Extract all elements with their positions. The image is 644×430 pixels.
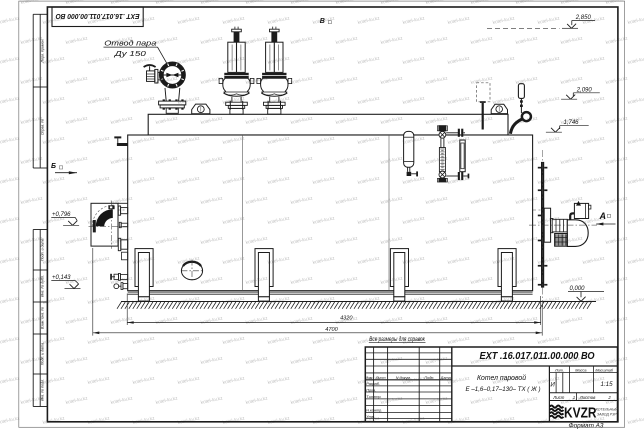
svg-text:Е –1,6–0,17–130– ТХ ( Ж ): Е –1,6–0,17–130– ТХ ( Ж ) [466,386,541,393]
svg-text:Лит.: Лит. [554,368,564,372]
svg-text:1:15: 1:15 [600,381,613,388]
svg-text:Пров.: Пров. [366,388,376,392]
svg-text:КОТЕЛЬНЫЙ: КОТЕЛЬНЫЙ [596,407,619,411]
svg-text:ЗАВОД РЗР: ЗАВОД РЗР [597,412,617,416]
svg-text:Перв. примен.: Перв. примен. [41,39,45,63]
svg-text:2,090: 2,090 [576,87,593,93]
svg-text:Н.контр.: Н.контр. [366,409,382,413]
svg-text:Ду 150: Ду 150 [113,49,145,58]
svg-text:Т.контр.: Т.контр. [366,395,381,399]
svg-text:Б: Б [51,163,56,170]
svg-text:0,000: 0,000 [570,286,586,292]
svg-text:Лист: Лист [552,395,564,400]
svg-text:4700: 4700 [325,327,338,333]
svg-text:Подп.: Подп. [424,376,434,380]
svg-text:Масса: Масса [575,368,586,372]
svg-text:Масштаб: Масштаб [595,368,614,372]
svg-text:Подп. и дата: Подп. и дата [41,238,45,261]
svg-text:Дата: Дата [440,376,451,380]
